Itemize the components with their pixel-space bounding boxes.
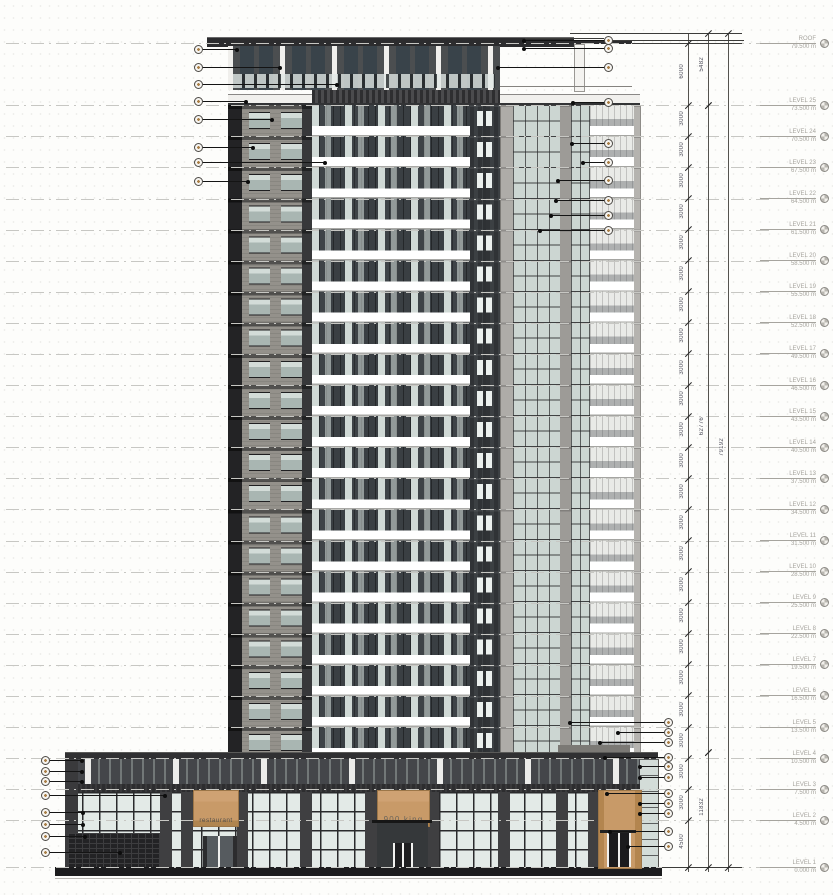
callout-leader-dot <box>638 812 642 816</box>
level-name: LEVEL 8 <box>760 626 816 634</box>
level-gridline <box>6 323 770 324</box>
floor-dimension: 3000 <box>679 795 685 810</box>
callout-leader-line <box>202 162 325 163</box>
floor-dimension: 3000 <box>679 733 685 748</box>
callout-leader-dot <box>118 851 122 855</box>
ground-line <box>55 878 662 879</box>
penthouse-column <box>574 44 585 92</box>
level-marker: LEVEL 2058.500 m <box>760 253 816 268</box>
level-name: LEVEL 2 <box>760 813 816 821</box>
keynote-callout <box>194 177 203 186</box>
callout-leader-line <box>49 771 82 772</box>
callout-leader-line <box>49 852 120 853</box>
level-gridline <box>6 105 770 106</box>
level-datum-icon <box>820 381 829 390</box>
level-elevation: 28.500 m <box>791 572 816 578</box>
callout-leader-line <box>202 67 280 68</box>
callout-leader-dot <box>603 756 607 760</box>
callout-leader-dot <box>608 830 612 834</box>
storefront-pier <box>181 792 193 867</box>
level-elevation: 67.500 m <box>791 168 816 174</box>
floor-dimension: 3000 <box>679 453 685 468</box>
level-datum-icon <box>820 863 829 872</box>
keynote-callout <box>41 791 50 800</box>
level-datum-icon <box>820 754 829 763</box>
floor-dimension: 3000 <box>679 391 685 406</box>
podium-garage-grille <box>68 833 160 867</box>
level-datum-icon <box>820 629 829 638</box>
level-gridline <box>6 509 770 510</box>
floor-dimension: 3000 <box>679 111 685 126</box>
level-datum-icon <box>820 194 829 203</box>
callout-leader-line <box>640 777 664 778</box>
callout-leader-dot <box>554 199 558 203</box>
callout-leader-line <box>202 84 337 85</box>
level-marker: LEVEL 616.500 m <box>760 688 816 703</box>
tower-right-glazing-2 <box>571 105 590 757</box>
callout-leader-dot <box>556 179 560 183</box>
level-gridline <box>6 572 770 573</box>
right-entrance-door <box>607 833 631 867</box>
keynote-callout <box>664 718 673 727</box>
callout-leader-line <box>524 48 604 49</box>
ground-slab <box>55 867 662 876</box>
floor-dimension: 3000 <box>679 608 685 623</box>
level-name: LEVEL 25 <box>760 98 816 106</box>
keynote-callout <box>604 158 613 167</box>
floor-dimension: 3000 <box>679 515 685 530</box>
callout-leader-dot <box>251 146 255 150</box>
floor-dimension: 3000 <box>679 235 685 250</box>
callout-leader-dot <box>270 118 274 122</box>
keynote-callout <box>41 756 50 765</box>
dimension-line-B <box>708 33 709 872</box>
level-marker: LEVEL 1852.500 m <box>760 315 816 330</box>
callout-leader-dot <box>538 229 542 233</box>
tower-brick-window-column-2 <box>281 105 302 757</box>
level-gridline <box>6 603 770 604</box>
keynote-callout <box>41 808 50 817</box>
callout-leader-dot <box>549 214 553 218</box>
keynote-callout <box>664 762 673 771</box>
level-elevation: 13.500 m <box>791 728 816 734</box>
span-dimension: 79192 <box>719 438 725 456</box>
level-marker: LEVEL 410.500 m <box>760 751 816 766</box>
level-name: LEVEL 12 <box>760 502 816 510</box>
keynote-callout <box>604 139 613 148</box>
callout-leader-line <box>49 836 85 837</box>
level-elevation: 49.500 m <box>791 354 816 360</box>
level-marker: LEVEL 2367.500 m <box>760 160 816 175</box>
level-elevation: 7.500 m <box>794 790 816 796</box>
callout-leader-dot <box>335 83 339 87</box>
level-marker: LEVEL 37.500 m <box>760 782 816 797</box>
tower-right-glazing-1 <box>513 105 560 757</box>
restaurant-sign-label: restaurant <box>199 817 232 824</box>
callout-leader-dot <box>638 765 642 769</box>
keynote-callout <box>194 97 203 106</box>
callout-leader-line <box>202 49 237 50</box>
podium-clerestory-band <box>65 759 658 784</box>
level-name: LEVEL 16 <box>760 378 816 386</box>
keynote-callout <box>194 45 203 54</box>
floor-dimension: 4500 <box>679 834 685 849</box>
storefront-pier <box>300 792 312 867</box>
extension-line <box>612 40 744 41</box>
floor-dimension: 3000 <box>679 484 685 499</box>
level-datum-icon <box>820 567 829 576</box>
callout-leader-line <box>49 824 83 825</box>
level-elevation: 61.500 m <box>791 230 816 236</box>
tower-left-edge-strip <box>228 105 242 757</box>
floor-dimension: 6000 <box>679 64 685 79</box>
level-datum-icon <box>820 318 829 327</box>
callout-leader-dot <box>83 835 87 839</box>
callout-leader-line <box>498 67 604 68</box>
keynote-callout <box>664 809 673 818</box>
level-name: LEVEL 18 <box>760 315 816 323</box>
level-gridline <box>6 261 770 262</box>
level-marker: LEVEL 513.500 m <box>760 720 816 735</box>
callout-leader-dot <box>244 100 248 104</box>
level-datum-icon <box>820 443 829 452</box>
callout-leader-dot <box>605 792 609 796</box>
callout-leader-line <box>202 181 248 182</box>
level-marker: ROOF79.500 m <box>760 36 816 51</box>
callout-leader-dot <box>570 142 574 146</box>
level-datum-icon <box>820 785 829 794</box>
level-name: LEVEL 11 <box>760 533 816 541</box>
storefront-pier <box>556 792 568 867</box>
level-gridline <box>6 385 770 386</box>
extension-line <box>525 38 604 39</box>
level-gridline <box>6 416 770 417</box>
level-name: LEVEL 17 <box>760 346 816 354</box>
level-elevation: 37.500 m <box>791 479 816 485</box>
floor-dimension: 3000 <box>679 297 685 312</box>
keynote-callout <box>604 63 613 72</box>
restaurant-sign: restaurant <box>193 790 239 827</box>
keynote-callout <box>604 196 613 205</box>
floor-dimension: 3000 <box>679 422 685 437</box>
keynote-callout <box>41 848 50 857</box>
keynote-callout <box>664 827 673 836</box>
level-marker: LEVEL 1131.500 m <box>760 533 816 548</box>
level-datum-icon <box>820 349 829 358</box>
level-name: LEVEL 3 <box>760 782 816 790</box>
callout-leader-line <box>524 40 604 41</box>
level-name: LEVEL 9 <box>760 595 816 603</box>
storefront-pier <box>498 792 510 867</box>
callout-leader-line <box>640 803 664 804</box>
keynote-callout <box>194 80 203 89</box>
callout-leader-line <box>558 180 604 181</box>
callout-leader-dot <box>80 770 84 774</box>
keynote-callout <box>194 115 203 124</box>
level-name: LEVEL 22 <box>760 191 816 199</box>
callout-leader-dot <box>571 101 575 105</box>
keynote-callout <box>604 211 613 220</box>
tower-brick-edge-strip <box>302 105 312 757</box>
level-name: LEVEL 21 <box>760 222 816 230</box>
callout-leader-line <box>49 760 82 761</box>
callout-leader-dot <box>616 731 620 735</box>
level-marker: LEVEL 2264.500 m <box>760 191 816 206</box>
level-gridline <box>6 136 770 137</box>
level-gridline <box>6 199 770 200</box>
level-datum-icon <box>820 163 829 172</box>
level-marker: LEVEL 2470.500 m <box>760 129 816 144</box>
callout-leader-line <box>49 795 165 796</box>
tower-brick-window-column-1 <box>249 105 270 757</box>
left-entrance-door <box>203 836 237 867</box>
callout-leader-dot <box>246 180 250 184</box>
storefront-pier <box>365 792 377 867</box>
callout-leader-line <box>551 215 604 216</box>
penthouse-lower-glazing <box>233 74 495 88</box>
level-elevation: 55.500 m <box>791 292 816 298</box>
level-marker: LEVEL 1440.500 m <box>760 440 816 455</box>
level-datum-icon <box>820 412 829 421</box>
floor-dimension: 3000 <box>679 670 685 685</box>
penthouse-guardrail <box>500 86 632 87</box>
level-marker: LEVEL 24.500 m <box>760 813 816 828</box>
level-gridline <box>6 696 770 697</box>
keynote-callout <box>194 143 203 152</box>
level-marker: LEVEL 719.500 m <box>760 657 816 672</box>
level-gridline <box>6 167 770 168</box>
callout-leader-dot <box>522 39 526 43</box>
level-datum-icon <box>820 256 829 265</box>
tower-center-balcony-band <box>312 105 470 757</box>
level-elevation: 43.500 m <box>791 417 816 423</box>
callout-leader-dot <box>496 66 500 70</box>
floor-dimension: 3000 <box>679 266 685 281</box>
keynote-callout <box>664 728 673 737</box>
elevation-drawing: ROOF79.500 m6000LEVEL 2573.500 m3000LEVE… <box>0 0 833 895</box>
level-elevation: 4.500 m <box>794 821 816 827</box>
level-marker: LEVEL 1955.500 m <box>760 284 816 299</box>
floor-dimension: 3000 <box>679 142 685 157</box>
callout-leader-line <box>605 757 664 758</box>
keynote-callout <box>664 799 673 808</box>
callout-leader-line <box>572 143 604 144</box>
keynote-callout <box>194 63 203 72</box>
level-datum-icon <box>820 505 829 514</box>
level-name: LEVEL 20 <box>760 253 816 261</box>
callout-leader-dot <box>278 66 282 70</box>
span-dimension: 11832 <box>699 798 705 816</box>
center-entrance-door <box>393 843 413 867</box>
storefront-pier <box>160 792 172 867</box>
level-elevation: 0.000 m <box>794 868 816 874</box>
keynote-callout <box>664 789 673 798</box>
level-name: LEVEL 7 <box>760 657 816 665</box>
keynote-callout <box>604 226 613 235</box>
dimension-line-A <box>688 33 689 872</box>
level-elevation: 64.500 m <box>791 199 816 205</box>
level-name: LEVEL 24 <box>760 129 816 137</box>
level-gridline <box>6 354 770 355</box>
level-gridline <box>6 230 770 231</box>
keynote-callout <box>664 773 673 782</box>
callout-leader-line <box>49 812 83 813</box>
level-elevation: 31.500 m <box>791 541 816 547</box>
level-elevation: 19.500 m <box>791 665 816 671</box>
keynote-callout <box>41 777 50 786</box>
level-gridline <box>6 541 770 542</box>
level-datum-icon <box>820 660 829 669</box>
level-gridline <box>6 634 770 635</box>
level-elevation: 58.500 m <box>791 261 816 267</box>
level-datum-icon <box>820 225 829 234</box>
callout-leader-line <box>600 742 664 743</box>
podium-spandrel-band <box>65 784 658 792</box>
callout-leader-line <box>583 162 604 163</box>
level-datum-icon <box>820 39 829 48</box>
level-elevation: 22.500 m <box>791 634 816 640</box>
floor-dimension: 3000 <box>679 702 685 717</box>
keynote-callout <box>194 158 203 167</box>
level-gridline <box>6 478 770 479</box>
level-elevation: 34.500 m <box>791 510 816 516</box>
level-elevation: 40.500 m <box>791 448 816 454</box>
level-name: LEVEL 19 <box>760 284 816 292</box>
floor-dimension: 3000 <box>679 204 685 219</box>
callout-leader-line <box>573 102 604 103</box>
level-marker: LEVEL 822.500 m <box>760 626 816 641</box>
keynote-callout <box>664 842 673 851</box>
tower-right-edge-pier <box>634 105 641 757</box>
level-gridline <box>6 292 770 293</box>
callout-leader-dot <box>80 759 84 763</box>
floor-dimension: 3000 <box>679 173 685 188</box>
level-marker: LEVEL 2573.500 m <box>760 98 816 113</box>
level-name: LEVEL 15 <box>760 409 816 417</box>
level-gridline <box>6 665 770 666</box>
level-name: LEVEL 10 <box>760 564 816 572</box>
callout-leader-dot <box>638 776 642 780</box>
floor-dimension: 3000 <box>679 639 685 654</box>
extension-line <box>662 867 742 868</box>
level-marker: LEVEL 1337.500 m <box>760 471 816 486</box>
level-datum-icon <box>820 691 829 700</box>
level-gridline <box>6 447 770 448</box>
callout-leader-line <box>618 732 664 733</box>
callout-leader-line <box>628 846 664 847</box>
level-datum-icon <box>820 474 829 483</box>
level-datum-icon <box>820 598 829 607</box>
keynote-callout <box>664 738 673 747</box>
callout-leader-line <box>570 722 664 723</box>
level-marker: LEVEL 1646.500 m <box>760 378 816 393</box>
storefront-pier <box>588 792 598 867</box>
span-dimension: 5482 <box>699 57 705 72</box>
level-name: LEVEL 1 <box>760 860 816 868</box>
callout-leader-dot <box>581 161 585 165</box>
level-name: LEVEL 14 <box>760 440 816 448</box>
keynote-callout <box>41 767 50 776</box>
callout-leader-line <box>640 813 664 814</box>
callout-leader-line <box>540 230 604 231</box>
level-gridline <box>6 758 770 759</box>
callout-leader-line <box>610 831 664 832</box>
callout-leader-line <box>202 147 253 148</box>
callout-leader-dot <box>638 802 642 806</box>
level-marker: LEVEL 925.500 m <box>760 595 816 610</box>
level-name: LEVEL 6 <box>760 688 816 696</box>
callout-leader-dot <box>81 811 85 815</box>
level-marker: LEVEL 1749.500 m <box>760 346 816 361</box>
callout-leader-line <box>556 200 604 201</box>
level-name: LEVEL 4 <box>760 751 816 759</box>
level-elevation: 52.500 m <box>791 323 816 329</box>
floor-dimension: 3000 <box>679 546 685 561</box>
level-name: ROOF <box>760 36 816 44</box>
level-elevation: 73.500 m <box>791 106 816 112</box>
callout-leader-dot <box>568 721 572 725</box>
level-elevation: 10.500 m <box>791 759 816 765</box>
callout-leader-dot <box>598 741 602 745</box>
level-datum-icon <box>820 816 829 825</box>
callout-leader-dot <box>522 47 526 51</box>
level-datum-icon <box>820 723 829 732</box>
callout-leader-dot <box>235 48 239 52</box>
level-name: LEVEL 13 <box>760 471 816 479</box>
level-name: LEVEL 23 <box>760 160 816 168</box>
callout-leader-line <box>202 101 246 102</box>
level-elevation: 70.500 m <box>791 137 816 143</box>
level-marker: LEVEL 1234.500 m <box>760 502 816 517</box>
dimension-line-C <box>728 33 729 872</box>
floor-dimension: 3000 <box>679 764 685 779</box>
callout-leader-dot <box>81 823 85 827</box>
level-marker: LEVEL 1028.500 m <box>760 564 816 579</box>
callout-leader-dot <box>80 780 84 784</box>
level-datum-icon <box>820 536 829 545</box>
callout-leader-line <box>640 766 664 767</box>
floor-dimension: 3000 <box>679 577 685 592</box>
level-elevation: 46.500 m <box>791 386 816 392</box>
keynote-callout <box>604 44 613 53</box>
keynote-callout <box>41 820 50 829</box>
level-datum-icon <box>820 287 829 296</box>
level-gridline <box>6 867 770 868</box>
keynote-callout <box>604 98 613 107</box>
floor-dimension: 3000 <box>679 328 685 343</box>
tower-light-pier-2 <box>560 105 571 757</box>
callout-leader-line <box>49 781 82 782</box>
callout-leader-dot <box>323 161 327 165</box>
callout-leader-line <box>202 119 272 120</box>
span-dimension: 62776 <box>699 417 705 435</box>
level-elevation: 79.500 m <box>791 44 816 50</box>
level-datum-icon <box>820 101 829 110</box>
callout-leader-dot <box>163 794 167 798</box>
level-elevation: 16.500 m <box>791 696 816 702</box>
keynote-callout <box>41 832 50 841</box>
level-gridline <box>6 727 770 728</box>
level-name: LEVEL 5 <box>760 720 816 728</box>
callout-leader-line <box>607 793 664 794</box>
callout-leader-dot <box>626 845 630 849</box>
extension-line <box>570 33 742 34</box>
keynote-callout <box>604 176 613 185</box>
level-marker: LEVEL 2161.500 m <box>760 222 816 237</box>
level-marker: LEVEL 10.000 m <box>760 860 816 875</box>
tower-dark-band-windows <box>477 105 492 757</box>
keynote-callout <box>664 753 673 762</box>
